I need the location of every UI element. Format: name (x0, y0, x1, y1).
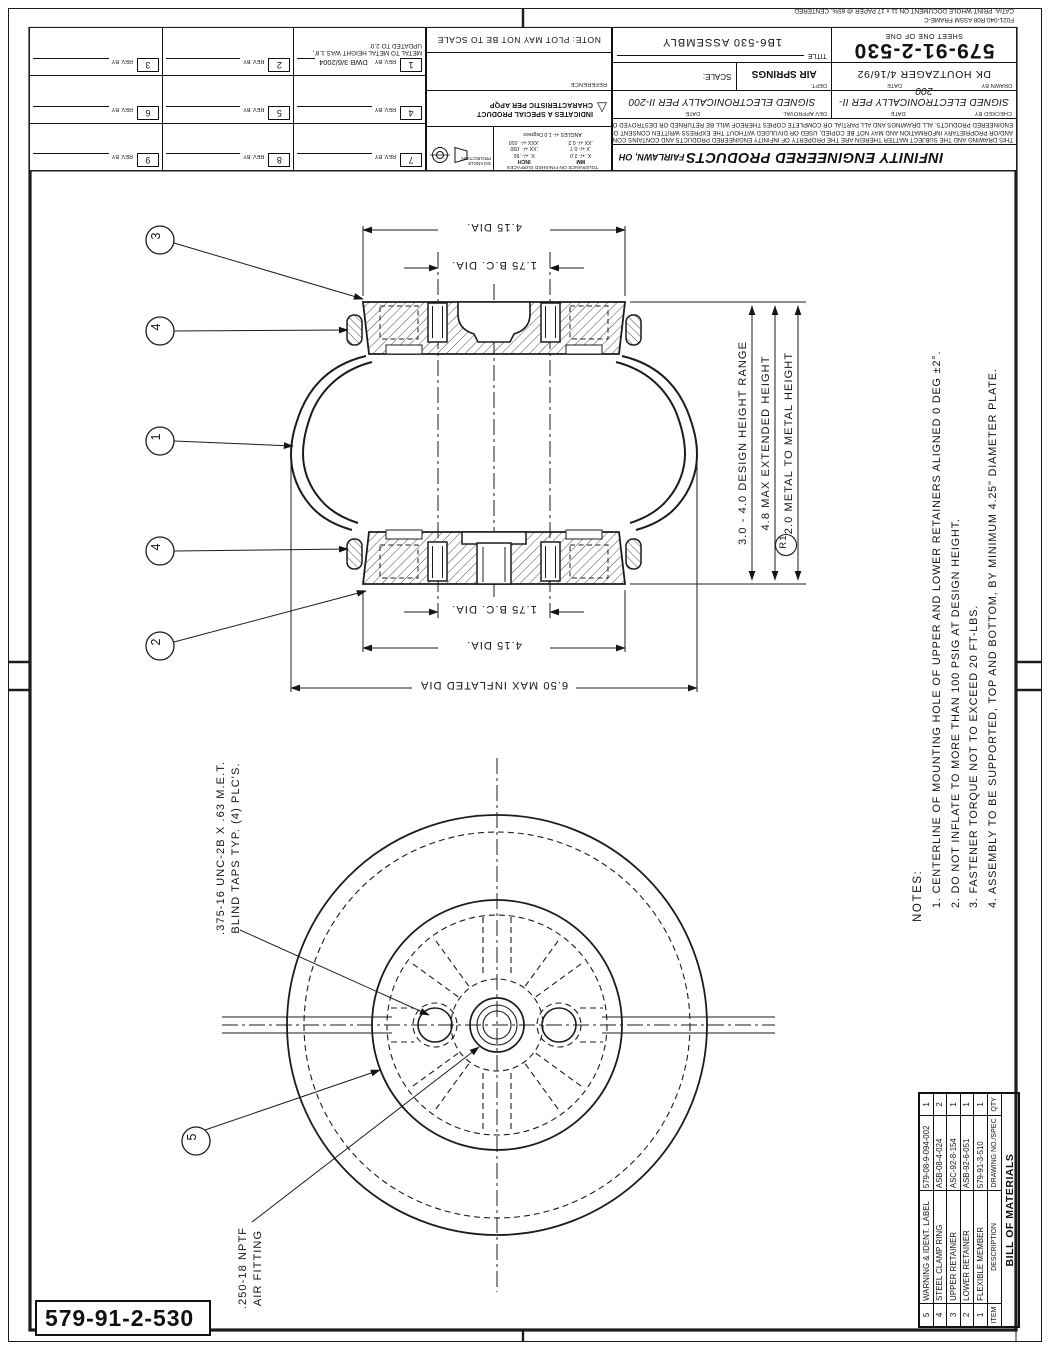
dim-design-height: 3.0 - 4.0 DESIGN HEIGHT RANGE (737, 341, 749, 545)
dev-approval-cell: DEV APPROVAL DATE SIGNED ELECTRONICALLY … (613, 91, 831, 118)
dim-extended-height: 4.8 MAX EXTENDED HEIGHT (760, 355, 772, 530)
frame-note-line2: CATIA: PRINT WHOLE DOCUMENT ON 11 x 17 P… (726, 6, 1014, 15)
note-1: 1. CENTERLINE OF MOUNTING HOLE OF UPPER … (928, 334, 947, 908)
projection-symbol-icon (430, 146, 468, 164)
scale-label: SCALE: (703, 72, 731, 81)
notes-header: NOTES: (912, 334, 924, 922)
tap-callout-line2: BLIND TAPS TYP. (4) PLC'S. (230, 762, 242, 933)
plan-view: .375-16 UNC-2B X .63 M.E.T. BLIND TAPS T… (215, 758, 775, 1309)
rev-cell-1: 1REV. BYDWB 3/6/2004 METAL TO METAL HEIG… (293, 28, 425, 75)
drawing-number-box: 579-91-2-530 (35, 1300, 211, 1336)
note-2: 2. DO NOT INFLATE TO MORE THAN 100 PSIG … (947, 334, 966, 908)
plot-scale-note: NOTE: PLOT MAY NOT BE TO SCALE (427, 28, 611, 52)
title-band: INFINITY ENGINEERED PRODUCTS FAIRLAWN, O… (30, 28, 1016, 170)
title-label: TITLE (808, 52, 827, 59)
balloon-5: 5 (185, 1133, 199, 1140)
rev-cell-9: 9REV. BY (30, 123, 162, 170)
warning-triangle-icon: △ (597, 102, 607, 115)
drawing-sheet: 4.15 DIA. 1.75 B.C. DIA. 1.75 B.C. DIA. … (0, 0, 1050, 1357)
bom-row: 5 WARNING & IDENT. LABEL 579-08-9-094-00… (919, 1093, 933, 1327)
frame-note: F021-040.R08 ASSM FRAME-C CATIA: PRINT W… (726, 2, 1014, 24)
balloons (146, 226, 380, 1155)
bom-row: 1 FLEXIBLE MEMBER 579-91-3-510 1 (974, 1093, 988, 1327)
section-dimensions (291, 226, 806, 692)
assembly-title: 1B6-530 ASSEMBLY (613, 36, 831, 48)
title-block: INFINITY ENGINEERED PRODUCTS FAIRLAWN, O… (611, 28, 1016, 170)
dim-bc-top: 1.75 B.C. DIA. (451, 259, 537, 271)
rev-cell-2: 2REV. BY (162, 28, 294, 75)
rev1-note: METAL TO METAL HEIGHT WAS 1.8', UPDATED … (297, 41, 422, 56)
rev-cell-4: 4REV. BY (293, 75, 425, 122)
rev-cell-6: 6REV. BY (30, 75, 162, 122)
sheet-border (8, 8, 1042, 1342)
drawn-by-name: DK HOUTZAGER 4/16/92 (832, 68, 1016, 80)
notes-block: NOTES: 1. CENTERLINE OF MOUNTING HOLE OF… (912, 334, 1012, 922)
balloon-2: 2 (149, 638, 163, 645)
company-name: INFINITY ENGINEERED PRODUCTS (686, 150, 944, 166)
balloon-4b: 4 (149, 543, 163, 550)
dept-cell: DEPT. AIR SPRINGS (736, 63, 831, 90)
bill-of-materials: 5 WARNING & IDENT. LABEL 579-08-9-094-00… (918, 1092, 1014, 1328)
balloon-1: 1 (149, 433, 163, 440)
revision-grid: 7REV. BY 8REV. BY 9REV. BY 4REV. BY 5REV… (30, 28, 425, 170)
sheet-count: SHEET ONE OF ONE (832, 32, 1016, 39)
bom-header-row: ITEM DESCRIPTION DRAWING NO./SPEC QTY (987, 1093, 1001, 1327)
tolerance-column: TOLERANCE ON FINISHED SURFACES MM INCH X… (425, 28, 611, 170)
special-characteristic-note: △ INDICATES A SPECIAL PRODUCT CHARACTERI… (427, 90, 611, 126)
bom-title-row: BILL OF MATERIALS (1001, 1093, 1019, 1327)
scale-cell: SCALE: (613, 63, 736, 90)
fitting-callout-line2: AIR FITTING (252, 1230, 264, 1306)
checked-by-cell: CHECKED BY DATE SIGNED ELECTRONICALLY PE… (831, 91, 1016, 118)
bom-row: 3 UPPER RETAINER ASC-92-8-154 1 (947, 1093, 961, 1327)
frame-note-line1: F021-040.R08 ASSM FRAME-C (726, 15, 1014, 24)
rev-flag: R1 (778, 534, 789, 548)
dim-metal-height: 2.0 METAL TO METAL HEIGHT (783, 352, 795, 534)
title-cell: TITLE 1B6-530 ASSEMBLY (613, 28, 831, 62)
rev-cell-7: 7REV. BY (293, 123, 425, 170)
rev-cell-8: 8REV. BY (162, 123, 294, 170)
dim-bc-bottom: 1.75 B.C. DIA. (451, 603, 537, 615)
balloon-4a: 4 (149, 323, 163, 330)
drawing-canvas: 4.15 DIA. 1.75 B.C. DIA. 1.75 B.C. DIA. … (0, 0, 1050, 1357)
rev-cell-3: 3REV. BY (30, 28, 162, 75)
lower-retainer (363, 530, 625, 584)
upper-retainer (363, 302, 625, 354)
dim-dia-bottom: 4.15 DIA. (466, 639, 522, 651)
tolerance-table: TOLERANCE ON FINISHED SURFACES MM INCH X… (493, 127, 611, 170)
company-location: FAIRLAWN, OH (619, 152, 685, 162)
bom-row: 2 LOWER RETAINER ASB-92-6-051 1 (960, 1093, 974, 1327)
drawing-number-bottom: 579-91-2-530 (37, 1305, 194, 1332)
reference-box: REFERENCE (427, 52, 611, 90)
note-3: 3. FASTENER TORQUE NOT TO EXCEED 20 FT-L… (965, 334, 984, 908)
tap-callout-line1: .375-16 UNC-2B X .63 M.E.T. (215, 761, 227, 935)
third-angle-projection: 3rd ANGLE PROJECTION (427, 127, 493, 170)
drawing-number-cell: 579-91-2-530 SHEET ONE OF ONE (831, 28, 1016, 62)
confidentiality-note: THIS DRAWING AND THE SUBJECT MATTER THER… (613, 118, 1016, 144)
dept-name: AIR SPRINGS (737, 68, 831, 79)
signed-electronically: SIGNED ELECTRONICALLY PER II-200 (613, 96, 831, 107)
drawn-by-cell: DRAWN BY DATE DK HOUTZAGER 4/16/92 (831, 63, 1016, 90)
balloon-3: 3 (149, 232, 163, 239)
dim-inflated: 6.50 MAX INFLATED DIA (420, 679, 568, 691)
drawing-number: 579-91-2-530 (832, 39, 1016, 61)
bom-row: 4 STEEL CLAMP RING ASB-08-4-024 2 (933, 1093, 947, 1327)
rev-cell-5: 5REV. BY (162, 75, 294, 122)
fitting-callout-line1: .250-18 NPTF (237, 1227, 249, 1309)
note-4: 4. ASSEMBLY TO BE SUPPORTED, TOP AND BOT… (984, 334, 1003, 908)
dim-dia-top: 4.15 DIA. (466, 221, 522, 233)
